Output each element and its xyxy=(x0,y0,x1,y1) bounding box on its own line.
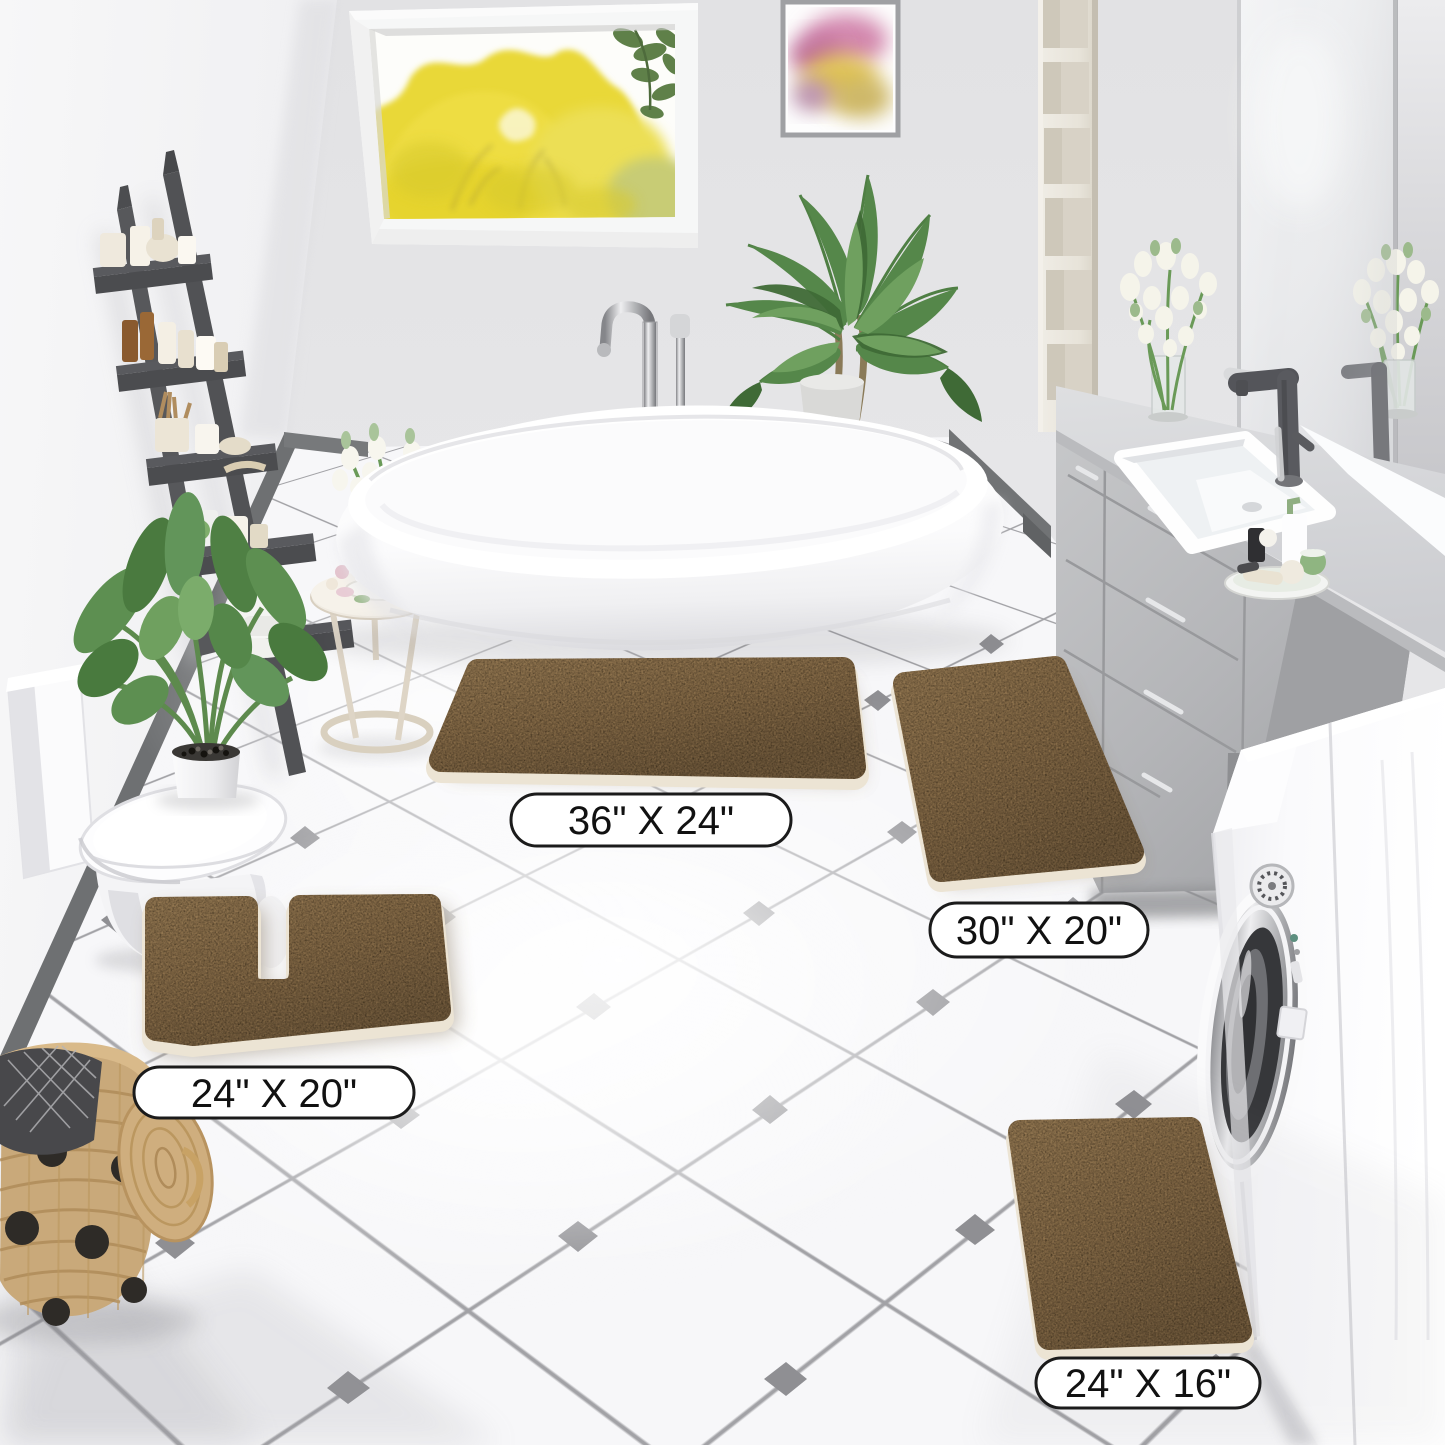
svg-text:24" X 16": 24" X 16" xyxy=(1065,1362,1231,1406)
svg-text:24" X 20": 24" X 20" xyxy=(191,1072,357,1116)
svg-text:36" X 24": 36" X 24" xyxy=(568,799,734,843)
svg-text:30" X 20": 30" X 20" xyxy=(956,909,1122,953)
